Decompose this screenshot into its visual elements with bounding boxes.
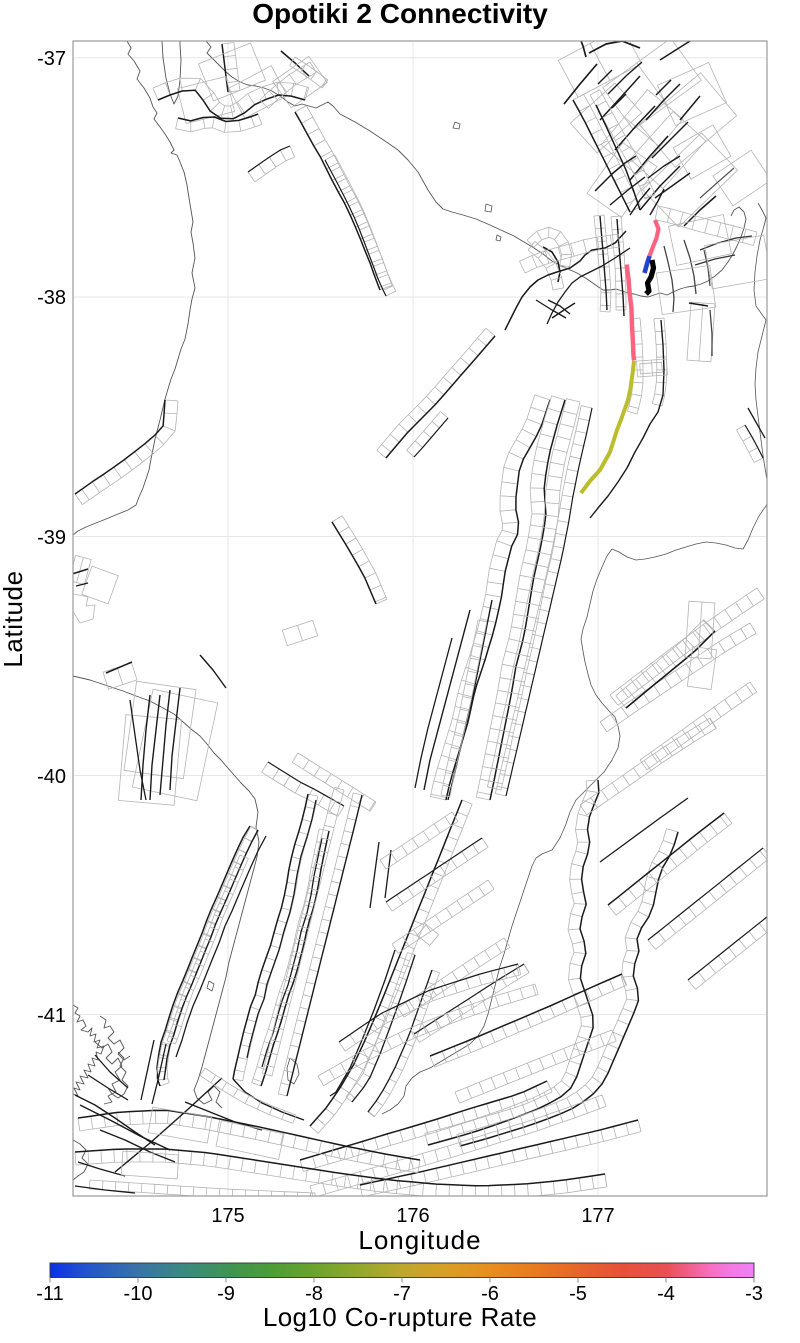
svg-text:-3: -3 — [745, 1283, 763, 1305]
svg-text:-5: -5 — [569, 1283, 587, 1305]
svg-text:Opotiki 2 Connectivity: Opotiki 2 Connectivity — [252, 0, 548, 29]
svg-text:-39: -39 — [37, 527, 66, 549]
svg-text:-10: -10 — [124, 1283, 153, 1305]
svg-text:176: 176 — [396, 1205, 429, 1227]
svg-text:Latitude: Latitude — [0, 570, 28, 667]
svg-text:175: 175 — [211, 1205, 244, 1227]
svg-text:Log10 Co-rupture Rate: Log10 Co-rupture Rate — [263, 1302, 537, 1332]
svg-text:-38: -38 — [37, 287, 66, 309]
svg-text:-9: -9 — [217, 1283, 235, 1305]
svg-text:Longitude: Longitude — [358, 1225, 481, 1255]
svg-text:-4: -4 — [657, 1283, 675, 1305]
svg-text:-11: -11 — [36, 1283, 63, 1305]
svg-text:177: 177 — [581, 1205, 614, 1227]
svg-text:-40: -40 — [37, 766, 66, 788]
svg-text:-37: -37 — [37, 48, 66, 70]
svg-text:-41: -41 — [37, 1005, 66, 1027]
